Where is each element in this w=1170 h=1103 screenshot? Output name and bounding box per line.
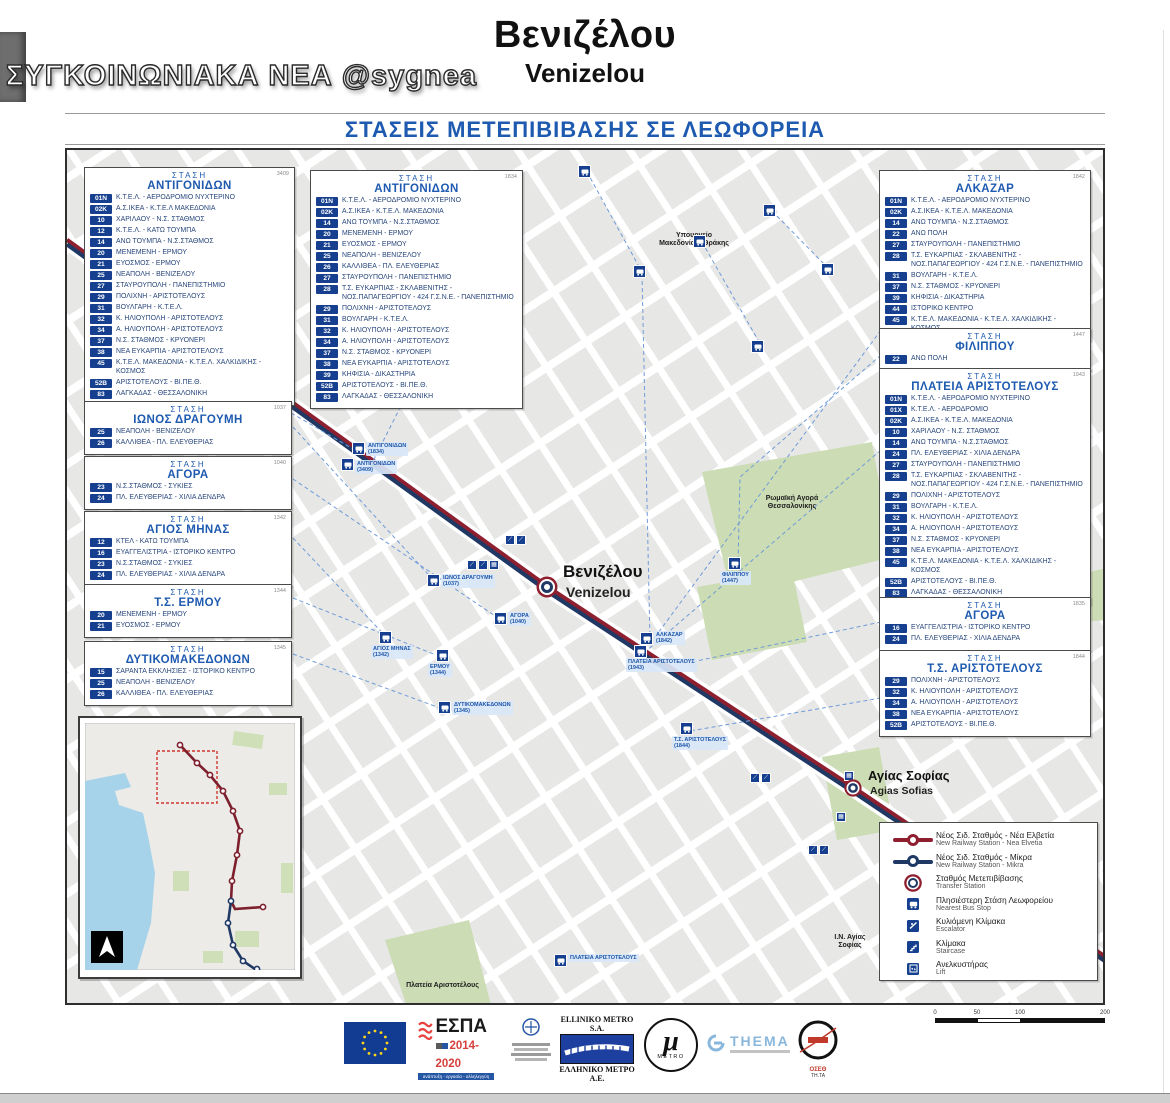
escalator-icon: ⟋ (808, 845, 818, 855)
bus-stop-icon (634, 645, 647, 658)
route-number-badge: 37 (90, 337, 112, 346)
route-label: ΝΕΑ ΕΥΚΑΡΠΙΑ - ΑΡΙΣΤΟΤΕΛΟΥΣ (116, 348, 224, 357)
map-label-aristotelous-square: Πλατεία Αριστοτέλους (395, 982, 490, 990)
route-label: Α. ΗΛΙΟΥΠΟΛΗ - ΑΡΙΣΤΟΤΕΛΟΥΣ (116, 326, 223, 335)
route-row: 29 ΠΟΛΙΧΝΗ - ΑΡΙΣΤΟΤΕΛΟΥΣ (90, 293, 289, 302)
route-list: 25 ΝΕΑΠΟΛΗ - ΒΕΝΙΖΕΛΟΥ 26 ΚΑΛΛΙΘΕΑ - ΠΛ.… (90, 428, 286, 448)
photo-edge-artifact (1163, 30, 1164, 1103)
box-station-code: 3409 (277, 171, 289, 177)
route-number-badge: 52B (90, 379, 112, 388)
route-label: Ν.Σ.ΣΤΑΘΜΟΣ - ΣΥΚΙΕΣ (116, 483, 193, 492)
scale-tick: 200 (1100, 1010, 1110, 1016)
route-number-badge: 52B (316, 382, 338, 391)
route-number-badge: 10 (885, 428, 907, 437)
route-number-badge: 29 (90, 293, 112, 302)
legend-label-el: Κυλιόμενη Κλίμακα (936, 917, 1005, 926)
box-station-name: Τ.Σ. ΑΡΙΣΤΟΤΕΛΟΥΣ (885, 663, 1085, 675)
route-label: Κ.Τ.Ε.Λ. - ΚΑΤΩ ΤΟΥΜΠΑ (116, 227, 196, 236)
route-number-badge: 37 (885, 536, 907, 545)
route-number-badge: 27 (885, 461, 907, 470)
route-row: 27 ΣΤΑΥΡΟΥΠΟΛΗ - ΠΑΝΕΠΙΣΤΗΜΙΟ (316, 274, 517, 283)
map-label-roman-agora: Ρωμαϊκή Αγορά Θεσσαλονίκης (755, 495, 829, 511)
route-number-badge: 32 (885, 514, 907, 523)
route-row: 02K Α.Σ.ΙΚΕΑ - Κ.Τ.Ε.Λ. ΜΑΚΕΔΟΝΙΑ (316, 208, 517, 217)
route-label: ΝΕΑΠΟΛΗ - ΒΕΝΙΖΕΛΟΥ (116, 428, 195, 437)
route-number-badge: 26 (90, 439, 112, 448)
entrance-icons: ⟋⟋ (505, 535, 526, 545)
metro-name-en: ELLINIKO METRO S.A. (558, 1015, 636, 1033)
route-label: Κ. ΗΛΙΟΥΠΟΛΗ - ΑΡΙΣΤΟΤΕΛΟΥΣ (342, 327, 449, 336)
route-row: 32 Κ. ΗΛΙΟΥΠΟΛΗ - ΑΡΙΣΤΟΤΕΛΟΥΣ (90, 315, 289, 324)
legend-label-el: Κλίμακα (936, 939, 966, 948)
bus-stop-icon (751, 340, 764, 353)
route-number-badge: 23 (90, 483, 112, 492)
route-label: ΝΕΑΠΟΛΗ - ΒΕΝΙΖΕΛΟΥ (116, 679, 195, 688)
station-box-agora-1835: ΣΤΑΣΗ ΑΓΟΡΑ 1835 16 ΕΥΑΓΓΕΛΙΣΤΡΙΑ - ΙΣΤΟ… (879, 597, 1091, 651)
station-name-en: Venizelou (566, 584, 631, 600)
route-row: 20 ΜΕΝΕΜΕΝΗ - ΕΡΜΟΥ (316, 230, 517, 239)
route-row: 27 ΣΤΑΥΡΟΥΠΟΛΗ - ΠΑΝΕΠΙΣΤΗΜΙΟ (885, 241, 1085, 250)
route-label: ΜΕΝΕΜΕΝΗ - ΕΡΜΟΥ (116, 611, 187, 620)
route-row: 01N Κ.Τ.Ε.Λ. - ΑΕΡΟΔΡΟΜΙΟ ΝΥΧΤΕΡΙΝΟ (885, 197, 1085, 206)
route-row: 28 Τ.Σ. ΕΥΚΑΡΠΙΑΣ - ΣΚΛΑΒΕΝΙΤΗΣ - ΝΟΣ.ΠΑ… (316, 285, 517, 303)
route-row: 38 ΝΕΑ ΕΥΚΑΡΠΙΑ - ΑΡΙΣΤΟΤΕΛΟΥΣ (885, 710, 1085, 719)
route-label: ΠΛ. ΕΛΕΥΘΕΡΙΑΣ - ΧΙΛΙΑ ΔΕΝΔΡΑ (911, 450, 1020, 459)
espa-name: ΕΣΠΑ (436, 1018, 499, 1036)
station-box-ts-aristotelous: ΣΤΑΣΗ Τ.Σ. ΑΡΙΣΤΟΤΕΛΟΥΣ 1844 29 ΠΟΛΙΧΝΗ … (879, 650, 1091, 737)
route-row: 32 Κ. ΗΛΙΟΥΠΟΛΗ - ΑΡΙΣΤΟΤΕΛΟΥΣ (316, 327, 517, 336)
route-number-badge: 02K (316, 208, 338, 217)
route-label: ΣΤΑΥΡΟΥΠΟΛΗ - ΠΑΝΕΠΙΣΤΗΜΙΟ (342, 274, 451, 283)
route-label: ΚΑΛΛΙΘΕΑ - ΠΛ. ΕΛΕΥΘΕΡΙΑΣ (342, 263, 439, 272)
route-number-badge: 34 (885, 525, 907, 534)
metro-train-graphic (560, 1034, 634, 1064)
route-number-badge: 38 (316, 360, 338, 369)
route-number-badge: 52B (885, 721, 907, 730)
station-box-dytikomakedonon: ΣΤΑΣΗ ΔΥΤΙΚΟΜΑΚΕΔΟΝΩΝ 1345 15 ΣΑΡΑΝΤΑ ΕΚ… (84, 641, 292, 706)
box-station-code: 1344 (274, 588, 286, 594)
bus-stop-icon (680, 722, 693, 735)
route-number-badge: 37 (885, 283, 907, 292)
route-row: 21 ΕΥΟΣΜΟΣ - ΕΡΜΟΥ (90, 260, 289, 269)
route-number-badge: 34 (316, 338, 338, 347)
station-box-ionos-dragoumi: ΣΤΑΣΗ ΙΩΝΟΣ ΔΡΑΓΟΥΜΗ 1037 25 ΝΕΑΠΟΛΗ - Β… (84, 401, 292, 455)
route-label: Α.Σ.ΙΚΕΑ - Κ.Τ.Ε.Λ. ΜΑΚΕΔΟΝΙΑ (911, 208, 1013, 217)
bus-stop-icon (494, 612, 507, 625)
route-row: 26 ΚΑΛΛΙΘΕΑ - ΠΛ. ΕΛΕΥΘΕΡΙΑΣ (90, 439, 286, 448)
map-legend: Νέος Σιδ. Σταθμός - Νέα Ελβετία New Rail… (879, 822, 1098, 981)
route-row: 12 ΚΤΕΛ - ΚΑΤΩ ΤΟΥΜΠΑ (90, 538, 286, 547)
route-row: 27 ΣΤΑΥΡΟΥΠΟΛΗ - ΠΑΝΕΠΙΣΤΗΜΙΟ (90, 282, 289, 291)
route-row: 01N Κ.Τ.Ε.Λ. - ΑΕΡΟΔΡΟΜΙΟ ΝΥΧΤΕΡΙΝΟ (885, 395, 1085, 404)
route-label: ΣΤΑΥΡΟΥΠΟΛΗ - ΠΑΝΕΠΙΣΤΗΜΙΟ (116, 282, 225, 291)
route-row: 26 ΚΑΛΛΙΘΕΑ - ΠΛ. ΕΛΕΥΘΕΡΙΑΣ (90, 690, 286, 699)
scale-tick: 50 (974, 1010, 981, 1016)
box-station-code: 1943 (1073, 372, 1085, 378)
route-number-badge: 27 (885, 241, 907, 250)
route-label: ΠΟΛΙΧΝΗ - ΑΡΙΣΤΟΤΕΛΟΥΣ (911, 677, 1000, 686)
box-station-name: ΑΝΤΙΓΟΝΙΔΩΝ (90, 180, 289, 192)
elliniko-metro-logo: ELLINIKO METRO S.A. ΕΛΛΗΝΙΚΟ ΜΕΤΡΟ Α.Ε. (558, 1015, 636, 1083)
route-row: 21 ΕΥΟΣΜΟΣ - ΕΡΜΟΥ (316, 241, 517, 250)
route-row: 31 ΒΟΥΛΓΑΡΗ - Κ.Τ.Ε.Λ. (885, 272, 1085, 281)
bus-stop-icon (728, 557, 741, 570)
metro-mu-logo: μ METRO (644, 1018, 698, 1072)
route-row: 10 ΧΑΡΙΛΑΟΥ - Ν.Σ. ΣΤΑΘΜΟΣ (885, 428, 1085, 437)
route-label: ΚΑΛΛΙΘΕΑ - ΠΛ. ΕΛΕΥΘΕΡΙΑΣ (116, 439, 213, 448)
bus-stop-icon (341, 458, 354, 471)
mu-glyph: μ (663, 1030, 679, 1054)
route-label: Κ.Τ.Ε.Λ. - ΑΕΡΟΔΡΟΜΙΟ ΝΥΧΤΕΡΙΝΟ (911, 197, 1030, 206)
bus-stop-icon (763, 204, 776, 217)
route-number-badge: 02K (885, 417, 907, 426)
route-label: Κ.Τ.Ε.Λ. ΜΑΚΕΔΟΝΙΑ - Κ.Τ.Ε.Λ. ΧΑΛΚΙΔΙΚΗΣ… (911, 558, 1085, 576)
route-label: ΠΟΛΙΧΝΗ - ΑΡΙΣΤΟΤΕΛΟΥΣ (911, 492, 1000, 501)
box-station-code: 1345 (274, 645, 286, 651)
station-box-agios-minas: ΣΤΑΣΗ ΑΓΙΟΣ ΜΗΝΑΣ 1342 12 ΚΤΕΛ - ΚΑΤΩ ΤΟ… (84, 511, 292, 587)
route-number-badge: 24 (885, 635, 907, 644)
route-number-badge: 32 (90, 315, 112, 324)
bus-stop-tag: ΠΛΑΤΕΙΑ ΑΡΙΣΤΟΤΕΛΟΥΣ(1943) (626, 658, 697, 672)
box-station-code: 1844 (1073, 654, 1085, 660)
route-number-badge: 25 (90, 428, 112, 437)
route-number-badge: 01N (90, 194, 112, 203)
route-number-badge: 31 (885, 503, 907, 512)
watermark-text: ΣΥΓΚΟΙΝΩΝΙΑΚΑ ΝΕΑ @sygnea (6, 60, 477, 93)
route-number-badge: 29 (885, 492, 907, 501)
route-list: 22 ΑΝΩ ΠΟΛΗ (885, 355, 1085, 364)
route-row: 14 ΑΝΩ ΤΟΥΜΠΑ - Ν.Σ.ΣΤΑΘΜΟΣ (90, 238, 289, 247)
staircase-icon (907, 941, 919, 953)
box-station-code: 1835 (1073, 601, 1085, 607)
entrance-icons: ▦ (844, 771, 854, 781)
espa-logo: ΕΣΠΑ 2014-2020 ανάπτυξη - εργασία - αλλη… (418, 1018, 498, 1080)
box-kicker: ΣΤΑΣΗ (885, 654, 1085, 663)
entrance-icons: ⟋⟋▦ (467, 560, 499, 570)
lift-icon (907, 963, 919, 975)
route-label: Κ.Τ.Ε.Λ. - ΑΕΡΟΔΡΟΜΙΟ (911, 406, 988, 415)
bus-stop-icon (907, 898, 919, 910)
route-number-badge: 37 (316, 349, 338, 358)
route-row: 25 ΝΕΑΠΟΛΗ - ΒΕΝΙΖΕΛΟΥ (316, 252, 517, 261)
route-row: 20 ΜΕΝΕΜΕΝΗ - ΕΡΜΟΥ (90, 611, 286, 620)
route-row: 12 Κ.Τ.Ε.Λ. - ΚΑΤΩ ΤΟΥΜΠΑ (90, 227, 289, 236)
route-label: Ν.Σ. ΣΤΑΘΜΟΣ - ΚΡΥΟΝΕΡΙ (911, 283, 1000, 292)
route-number-badge: 83 (90, 390, 112, 399)
legend-row: Κλίμακα Staircase (890, 939, 1089, 956)
route-row: 21 ΕΥΟΣΜΟΣ - ΕΡΜΟΥ (90, 622, 286, 631)
route-label: Α. ΗΛΙΟΥΠΟΛΗ - ΑΡΙΣΤΟΤΕΛΟΥΣ (342, 338, 449, 347)
entrance-icons: ⟋⟋ (750, 773, 771, 783)
box-station-code: 1037 (274, 405, 286, 411)
route-label: ΝΕΑ ΕΥΚΑΡΠΙΑ - ΑΡΙΣΤΟΤΕΛΟΥΣ (342, 360, 450, 369)
route-number-badge: 26 (90, 690, 112, 699)
entrance-icons: ▦ (836, 812, 846, 822)
metro-station-marker-venizelou (541, 581, 553, 593)
route-list: 12 ΚΤΕΛ - ΚΑΤΩ ΤΟΥΜΠΑ 16 ΕΥΑΓΓΕΛΙΣΤΡΙΑ -… (90, 538, 286, 580)
route-row: 29 ΠΟΛΙΧΝΗ - ΑΡΙΣΤΟΤΕΛΟΥΣ (316, 305, 517, 314)
route-row: 15 ΣΑΡΑΝΤΑ ΕΚΚΛΗΣΙΕΣ - ΙΣΤΟΡΙΚΟ ΚΕΝΤΡΟ (90, 668, 286, 677)
route-list: 23 Ν.Σ.ΣΤΑΘΜΟΣ - ΣΥΚΙΕΣ 24 ΠΛ. ΕΛΕΥΘΕΡΙΑ… (90, 483, 286, 503)
route-label: Κ. ΗΛΙΟΥΠΟΛΗ - ΑΡΙΣΤΟΤΕΛΟΥΣ (911, 514, 1018, 523)
ministry-logo (508, 1018, 554, 1063)
route-row: 37 Ν.Σ. ΣΤΑΘΜΟΣ - ΚΡΥΟΝΕΡΙ (316, 349, 517, 358)
legend-row: Κυλιόμενη Κλίμακα Escalator (890, 917, 1089, 934)
legend-label-el: Ανελκυστήρας (936, 960, 988, 969)
route-list: 01N Κ.Τ.Ε.Λ. - ΑΕΡΟΔΡΟΜΙΟ ΝΥΧΤΕΡΙΝΟ 02K … (316, 197, 517, 402)
bus-stop-tag: ΙΩΝΟΣ ΔΡΑΓΟΥΜΗ(1037) (441, 574, 495, 588)
route-row: 01X Κ.Τ.Ε.Λ. - ΑΕΡΟΔΡΟΜΙΟ (885, 406, 1085, 415)
bus-stop-icon (352, 442, 365, 455)
page-subtitle: ΣΤΑΣΕΙΣ ΜΕΤΕΠΙΒΙΒΑΣΗΣ ΣΕ ΛΕΩΦΟΡΕΙΑ (65, 117, 1105, 143)
route-label: ΣΤΑΥΡΟΥΠΟΛΗ - ΠΑΝΕΠΙΣΤΗΜΙΟ (911, 461, 1020, 470)
page-title-greek: Βενιζέλου (65, 14, 1105, 57)
box-kicker: ΣΤΑΣΗ (90, 405, 286, 414)
bus-stop-tag: ΔΥΤΙΚΟΜΑΚΕΔΟΝΩΝ(1345) (452, 701, 513, 715)
route-label: ΛΑΓΚΑΔΑΣ - ΘΕΣΣΑΛΟΝΙΚΗ (116, 390, 207, 399)
route-number-badge: 34 (885, 699, 907, 708)
route-row: 38 ΝΕΑ ΕΥΚΑΡΠΙΑ - ΑΡΙΣΤΟΤΕΛΟΥΣ (885, 547, 1085, 556)
route-row: 02K Α.Σ.ΙΚΕΑ - Κ.Τ.Ε.Λ. ΜΑΚΕΔΟΝΙΑ (885, 417, 1085, 426)
route-number-badge: 27 (316, 274, 338, 283)
bus-stop-icon (438, 701, 451, 714)
route-label: ΑΡΙΣΤΟΤΕΛΟΥΣ - ΒΙ.ΠΕ.Θ. (911, 721, 996, 730)
legend-label-en: Staircase (936, 948, 966, 956)
route-number-badge: 34 (90, 326, 112, 335)
route-row: 52B ΑΡΙΣΤΟΤΕΛΟΥΣ - ΒΙ.ΠΕ.Θ. (885, 578, 1085, 587)
map-label-agia-sofia-church: Ι.Ν. Αγίας Σοφίας (828, 934, 872, 950)
route-number-badge: 38 (885, 710, 907, 719)
route-number-badge: 38 (90, 348, 112, 357)
legend-row: Ανελκυστήρας Lift (890, 960, 1089, 977)
route-number-badge: 32 (316, 327, 338, 336)
espa-tagline: ανάπτυξη - εργασία - αλληλεγγύη (418, 1073, 494, 1080)
box-kicker: ΣΤΑΣΗ (885, 332, 1085, 341)
route-list: 15 ΣΑΡΑΝΤΑ ΕΚΚΛΗΣΙΕΣ - ΙΣΤΟΡΙΚΟ ΚΕΝΤΡΟ 2… (90, 668, 286, 699)
legend-label-el: Νέος Σιδ. Σταθμός - Μίκρα (936, 853, 1032, 862)
thema-word: THEMA (730, 1033, 790, 1049)
route-row: 38 ΝΕΑ ΕΥΚΑΡΠΙΑ - ΑΡΙΣΤΟΤΕΛΟΥΣ (316, 360, 517, 369)
route-row: 16 ΕΥΑΓΓΕΛΙΣΤΡΙΑ - ΙΣΤΟΡΙΚΟ ΚΕΝΤΡΟ (885, 624, 1085, 633)
route-label: ΒΟΥΛΓΑΡΗ - Κ.Τ.Ε.Λ. (911, 272, 978, 281)
staircase-icon: ⟋ (761, 773, 771, 783)
route-label: ΑΝΩ ΤΟΥΜΠΑ - Ν.Σ.ΣΤΑΘΜΟΣ (911, 219, 1009, 228)
box-station-name: ΑΛΚΑΖΑΡ (885, 183, 1085, 195)
route-number-badge: 20 (316, 230, 338, 239)
route-label: ΑΝΩ ΠΟΛΗ (911, 230, 947, 239)
route-label: Τ.Σ. ΕΥΚΑΡΠΙΑΣ - ΣΚΛΑΒΕΝΙΤΗΣ - ΝΟΣ.ΠΑΠΑΓ… (911, 472, 1085, 490)
route-list: 29 ΠΟΛΙΧΝΗ - ΑΡΙΣΤΟΤΕΛΟΥΣ 32 Κ. ΗΛΙΟΥΠΟΛ… (885, 677, 1085, 730)
route-number-badge: 32 (885, 688, 907, 697)
box-kicker: ΣΤΑΣΗ (316, 174, 517, 183)
route-number-badge: 24 (90, 571, 112, 580)
scale-bar: 0 50 100 200 (935, 1010, 1107, 1026)
route-number-badge: 10 (90, 216, 112, 225)
oseth-logo: ΟΣΕΘ ΤΗ.ΤΑ (790, 1018, 846, 1079)
route-label: Κ.Τ.Ε.Λ. - ΑΕΡΟΔΡΟΜΙΟ ΝΥΧΤΕΡΙΝΟ (342, 197, 461, 206)
legend-label-en: New Railway Station - Mikra (936, 862, 1032, 870)
route-number-badge: 16 (885, 624, 907, 633)
route-label: ΝΕΑ ΕΥΚΑΡΠΙΑ - ΑΡΙΣΤΟΤΕΛΟΥΣ (911, 547, 1019, 556)
route-number-badge: 21 (316, 241, 338, 250)
bus-stop-icon (427, 574, 440, 587)
route-label: ΕΥΟΣΜΟΣ - ΕΡΜΟΥ (116, 622, 181, 631)
route-number-badge: 45 (885, 316, 907, 325)
route-number-badge: 01X (885, 406, 907, 415)
route-label: Τ.Σ. ΕΥΚΑΡΠΙΑΣ - ΣΚΛΑΒΕΝΙΤΗΣ - ΝΟΣ.ΠΑΠΑΓ… (342, 285, 517, 303)
scale-tick: 0 (933, 1010, 936, 1016)
route-label: ΙΣΤΟΡΙΚΟ ΚΕΝΤΡΟ (911, 305, 973, 314)
route-label: ΑΡΙΣΤΟΤΕΛΟΥΣ - ΒΙ.ΠΕ.Θ. (911, 578, 996, 587)
route-label: Κ.Τ.Ε.Λ. ΜΑΚΕΔΟΝΙΑ - Κ.Τ.Ε.Λ. ΧΑΛΚΙΔΙΚΗΣ… (116, 359, 289, 377)
route-row: 31 ΒΟΥΛΓΑΡΗ - Κ.Τ.Ε.Λ. (885, 503, 1085, 512)
box-station-code: 1834 (505, 174, 517, 180)
box-station-name: ΠΛΑΤΕΙΑ ΑΡΙΣΤΟΤΕΛΟΥΣ (885, 381, 1085, 393)
route-label: ΚΗΦΙΣΙΑ - ΔΙΚΑΣΤΗΡΙΑ (342, 371, 415, 380)
route-number-badge: 14 (316, 219, 338, 228)
bus-stop-icon (633, 265, 646, 278)
box-kicker: ΣΤΑΣΗ (90, 460, 286, 469)
legend-row: Νέος Σιδ. Σταθμός - Μίκρα New Railway St… (890, 853, 1089, 870)
escalator-icon: ⟋ (505, 535, 515, 545)
route-number-badge: 52B (885, 578, 907, 587)
escalator-icon: ⟋ (750, 773, 760, 783)
metro-name-el: ΕΛΛΗΝΙΚΟ ΜΕΤΡΟ Α.Ε. (558, 1065, 636, 1083)
route-number-badge: 31 (316, 316, 338, 325)
route-number-badge: 28 (885, 472, 907, 481)
overview-inset-map (78, 716, 302, 979)
escalator-icon: ⟋ (467, 560, 477, 570)
route-label: ΑΝΩ ΤΟΥΜΠΑ - Ν.Σ.ΣΤΑΘΜΟΣ (116, 238, 214, 247)
route-row: 02K Α.Σ.ΙΚΕΑ - Κ.Τ.Ε.Λ. ΜΑΚΕΔΟΝΙΑ (885, 208, 1085, 217)
bus-stop-tag: ΦΙΛΙΠΠΟΥ(1447) (720, 571, 751, 585)
box-station-name: ΑΓΙΟΣ ΜΗΝΑΣ (90, 524, 286, 536)
bus-stop-icon (821, 263, 834, 276)
legend-label-el: Νέος Σιδ. Σταθμός - Νέα Ελβετία (936, 831, 1054, 840)
route-row: 28 Τ.Σ. ΕΥΚΑΡΠΙΑΣ - ΣΚΛΑΒΕΝΙΤΗΣ - ΝΟΣ.ΠΑ… (885, 472, 1085, 490)
route-number-badge: 01N (885, 395, 907, 404)
metro-word: METRO (657, 1054, 684, 1060)
box-kicker: ΣΤΑΣΗ (90, 171, 289, 180)
route-label: Α. ΗΛΙΟΥΠΟΛΗ - ΑΡΙΣΤΟΤΕΛΟΥΣ (911, 699, 1018, 708)
box-kicker: ΣΤΑΣΗ (885, 601, 1085, 610)
route-number-badge: 21 (90, 260, 112, 269)
box-station-name: ΦΙΛΙΠΠΟΥ (885, 341, 1085, 353)
route-number-badge: 12 (90, 227, 112, 236)
entrance-icons: ⟋⟋ (808, 845, 829, 855)
route-label: ΠΟΛΙΧΝΗ - ΑΡΙΣΤΟΤΕΛΟΥΣ (342, 305, 431, 314)
route-row: 45 Κ.Τ.Ε.Λ. ΜΑΚΕΔΟΝΙΑ - Κ.Τ.Ε.Λ. ΧΑΛΚΙΔΙ… (90, 359, 289, 377)
metro-station-marker-agias-sofias (848, 783, 858, 793)
route-label: ΑΝΩ ΤΟΥΜΠΑ - Ν.Σ.ΣΤΑΘΜΟΣ (911, 439, 1009, 448)
legend-label-el: Σταθμός Μετεπιβίβασης (936, 874, 1023, 883)
route-label: ΣΑΡΑΝΤΑ ΕΚΚΛΗΣΙΕΣ - ΙΣΤΟΡΙΚΟ ΚΕΝΤΡΟ (116, 668, 255, 677)
bus-stop-icon (640, 632, 653, 645)
route-label: ΝΕΑΠΟΛΗ - ΒΕΝΙΖΕΛΟΥ (116, 271, 195, 280)
route-row: 24 ΠΛ. ΕΛΕΥΘΕΡΙΑΣ - ΧΙΛΙΑ ΔΕΝΔΡΑ (885, 635, 1085, 644)
route-number-badge: 83 (316, 393, 338, 402)
route-label: Α.Σ.ΙΚΕΑ - Κ.Τ.Ε.Λ. ΜΑΚΕΔΟΝΙΑ (342, 208, 444, 217)
route-label: ΜΕΝΕΜΕΝΗ - ΕΡΜΟΥ (116, 249, 187, 258)
route-label: ΠΛ. ΕΛΕΥΘΕΡΙΑΣ - ΧΙΛΙΑ ΔΕΝΔΡΑ (116, 571, 225, 580)
route-label: ΑΡΙΣΤΟΤΕΛΟΥΣ - ΒΙ.ΠΕ.Θ. (342, 382, 427, 391)
station-name-en: Agias Sofias (870, 785, 933, 797)
route-list: 01N Κ.Τ.Ε.Λ. - ΑΕΡΟΔΡΟΜΙΟ ΝΥΧΤΕΡΙΝΟ 02K … (885, 197, 1085, 334)
route-label: Κ. ΗΛΙΟΥΠΟΛΗ - ΑΡΙΣΤΟΤΕΛΟΥΣ (116, 315, 223, 324)
route-row: 32 Κ. ΗΛΙΟΥΠΟΛΗ - ΑΡΙΣΤΟΤΕΛΟΥΣ (885, 514, 1085, 523)
route-row: 39 ΚΗΦΙΣΙΑ - ΔΙΚΑΣΤΗΡΙΑ (885, 294, 1085, 303)
route-label: ΝΕΑΠΟΛΗ - ΒΕΝΙΖΕΛΟΥ (342, 252, 421, 261)
station-name-el: Αγίας Σοφίας (868, 768, 950, 783)
route-number-badge: 45 (90, 359, 112, 368)
route-row: 25 ΝΕΑΠΟΛΗ - ΒΕΝΙΖΕΛΟΥ (90, 679, 286, 688)
box-station-name: ΑΓΟΡΑ (885, 610, 1085, 622)
eu-flag-logo (344, 1022, 406, 1064)
route-row: 26 ΚΑΛΛΙΘΕΑ - ΠΛ. ΕΛΕΥΘΕΡΙΑΣ (316, 263, 517, 272)
route-list: 01N Κ.Τ.Ε.Λ. - ΑΕΡΟΔΡΟΜΙΟ ΝΥΧΤΕΡΙΝΟ 01X … (885, 395, 1085, 598)
bus-stop-tag: ΑΓΟΡΑ(1040) (508, 612, 531, 626)
route-number-badge: 29 (885, 677, 907, 686)
route-row: 22 ΑΝΩ ΠΟΛΗ (885, 355, 1085, 364)
route-number-badge: 45 (885, 558, 907, 567)
railway-line-red-icon (893, 833, 933, 847)
legend-row: Σταθμός Μετεπιβίβασης Transfer Station (890, 874, 1089, 891)
route-row: 24 ΠΛ. ΕΛΕΥΘΕΡΙΑΣ - ΧΙΛΙΑ ΔΕΝΔΡΑ (90, 494, 286, 503)
route-label: Τ.Σ. ΕΥΚΑΡΠΙΑΣ - ΣΚΛΑΒΕΝΙΤΗΣ - ΝΟΣ.ΠΑΠΑΓ… (911, 252, 1085, 270)
route-label: ΕΥΑΓΓΕΛΙΣΤΡΙΑ - ΙΣΤΟΡΙΚΟ ΚΕΝΤΡΟ (116, 549, 235, 558)
park-small (697, 570, 807, 660)
bus-stop-tag: ΑΓΙΟΣ ΜΗΝΑΣ(1342) (371, 645, 413, 659)
thema-logo: THEMA (706, 1033, 790, 1053)
route-row: 52B ΑΡΙΣΤΟΤΕΛΟΥΣ - ΒΙ.ΠΕ.Θ. (316, 382, 517, 391)
route-row: 34 Α. ΗΛΙΟΥΠΟΛΗ - ΑΡΙΣΤΟΤΕΛΟΥΣ (316, 338, 517, 347)
route-number-badge: 27 (90, 282, 112, 291)
route-label: ΧΑΡΙΛΑΟΥ - Ν.Σ. ΣΤΑΘΜΟΣ (911, 428, 1000, 437)
route-number-badge: 20 (90, 249, 112, 258)
route-number-badge: 28 (885, 252, 907, 261)
escalator-icon (907, 920, 919, 932)
box-kicker: ΣΤΑΣΗ (885, 174, 1085, 183)
bus-stop-tag: ΕΡΜΟΥ(1344) (428, 663, 452, 677)
route-number-badge: 39 (316, 371, 338, 380)
route-number-badge: 22 (885, 355, 907, 364)
lift-icon: ▦ (844, 771, 854, 781)
route-label: Κ. ΗΛΙΟΥΠΟΛΗ - ΑΡΙΣΤΟΤΕΛΟΥΣ (911, 688, 1018, 697)
route-number-badge: 24 (90, 494, 112, 503)
route-row: 14 ΑΝΩ ΤΟΥΜΠΑ - Ν.Σ.ΣΤΑΘΜΟΣ (885, 219, 1085, 228)
route-label: Ν.Σ. ΣΤΑΘΜΟΣ - ΚΡΥΟΝΕΡΙ (342, 349, 431, 358)
route-label: ΑΝΩ ΤΟΥΜΠΑ - Ν.Σ.ΣΤΑΘΜΟΣ (342, 219, 440, 228)
route-number-badge: 23 (90, 560, 112, 569)
legend-label-en: Lift (936, 969, 988, 977)
box-station-code: 1040 (274, 460, 286, 466)
route-label: ΠΛ. ΕΛΕΥΘΕΡΙΑΣ - ΧΙΛΙΑ ΔΕΝΔΡΑ (116, 494, 225, 503)
route-label: Α.Σ.ΙΚΕΑ - Κ.Τ.Ε.Λ ΜΑΚΕΔΟΝΙΑ (116, 205, 216, 214)
route-row: 45 Κ.Τ.Ε.Λ. ΜΑΚΕΔΟΝΙΑ - Κ.Τ.Ε.Λ. ΧΑΛΚΙΔΙ… (885, 558, 1085, 576)
route-row: 16 ΕΥΑΓΓΕΛΙΣΤΡΙΑ - ΙΣΤΟΡΙΚΟ ΚΕΝΤΡΟ (90, 549, 286, 558)
route-label: ΜΕΝΕΜΕΝΗ - ΕΡΜΟΥ (342, 230, 413, 239)
route-number-badge: 02K (90, 205, 112, 214)
route-number-badge: 28 (316, 285, 338, 294)
station-box-alkazar: ΣΤΑΣΗ ΑΛΚΑΖΑΡ 1842 01N Κ.Τ.Ε.Λ. - ΑΕΡΟΔΡ… (879, 170, 1091, 341)
route-label: ΝΕΑ ΕΥΚΑΡΠΙΑ - ΑΡΙΣΤΟΤΕΛΟΥΣ (911, 710, 1019, 719)
route-number-badge: 25 (316, 252, 338, 261)
route-number-badge: 22 (885, 230, 907, 239)
park-aristotelous-square (385, 920, 491, 1005)
route-row: 34 Α. ΗΛΙΟΥΠΟΛΗ - ΑΡΙΣΤΟΤΕΛΟΥΣ (90, 326, 289, 335)
legend-label-en: Transfer Station (936, 883, 1023, 891)
bus-stop-icon (578, 165, 591, 178)
